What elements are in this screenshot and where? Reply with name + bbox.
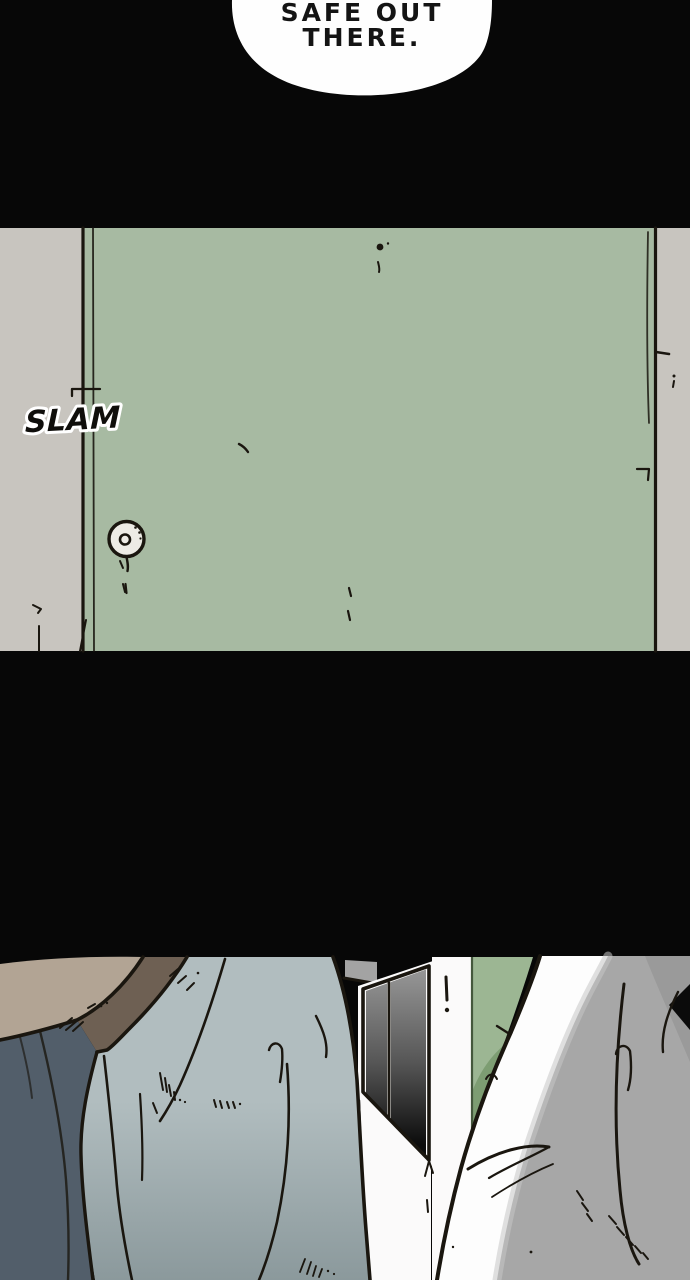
green-door	[84, 228, 655, 651]
door-panel: SLAM	[0, 228, 690, 651]
speech-bubble-line-2: THERE.	[303, 23, 422, 52]
webtoon-panel-page: SAFE OUT THERE.	[0, 0, 690, 1280]
peephole	[377, 244, 384, 251]
sfx-slam: SLAM	[25, 400, 121, 440]
character-left	[0, 957, 370, 1280]
hallway-scene	[0, 956, 690, 1280]
comic-artwork: SAFE OUT THERE.	[0, 0, 690, 1280]
